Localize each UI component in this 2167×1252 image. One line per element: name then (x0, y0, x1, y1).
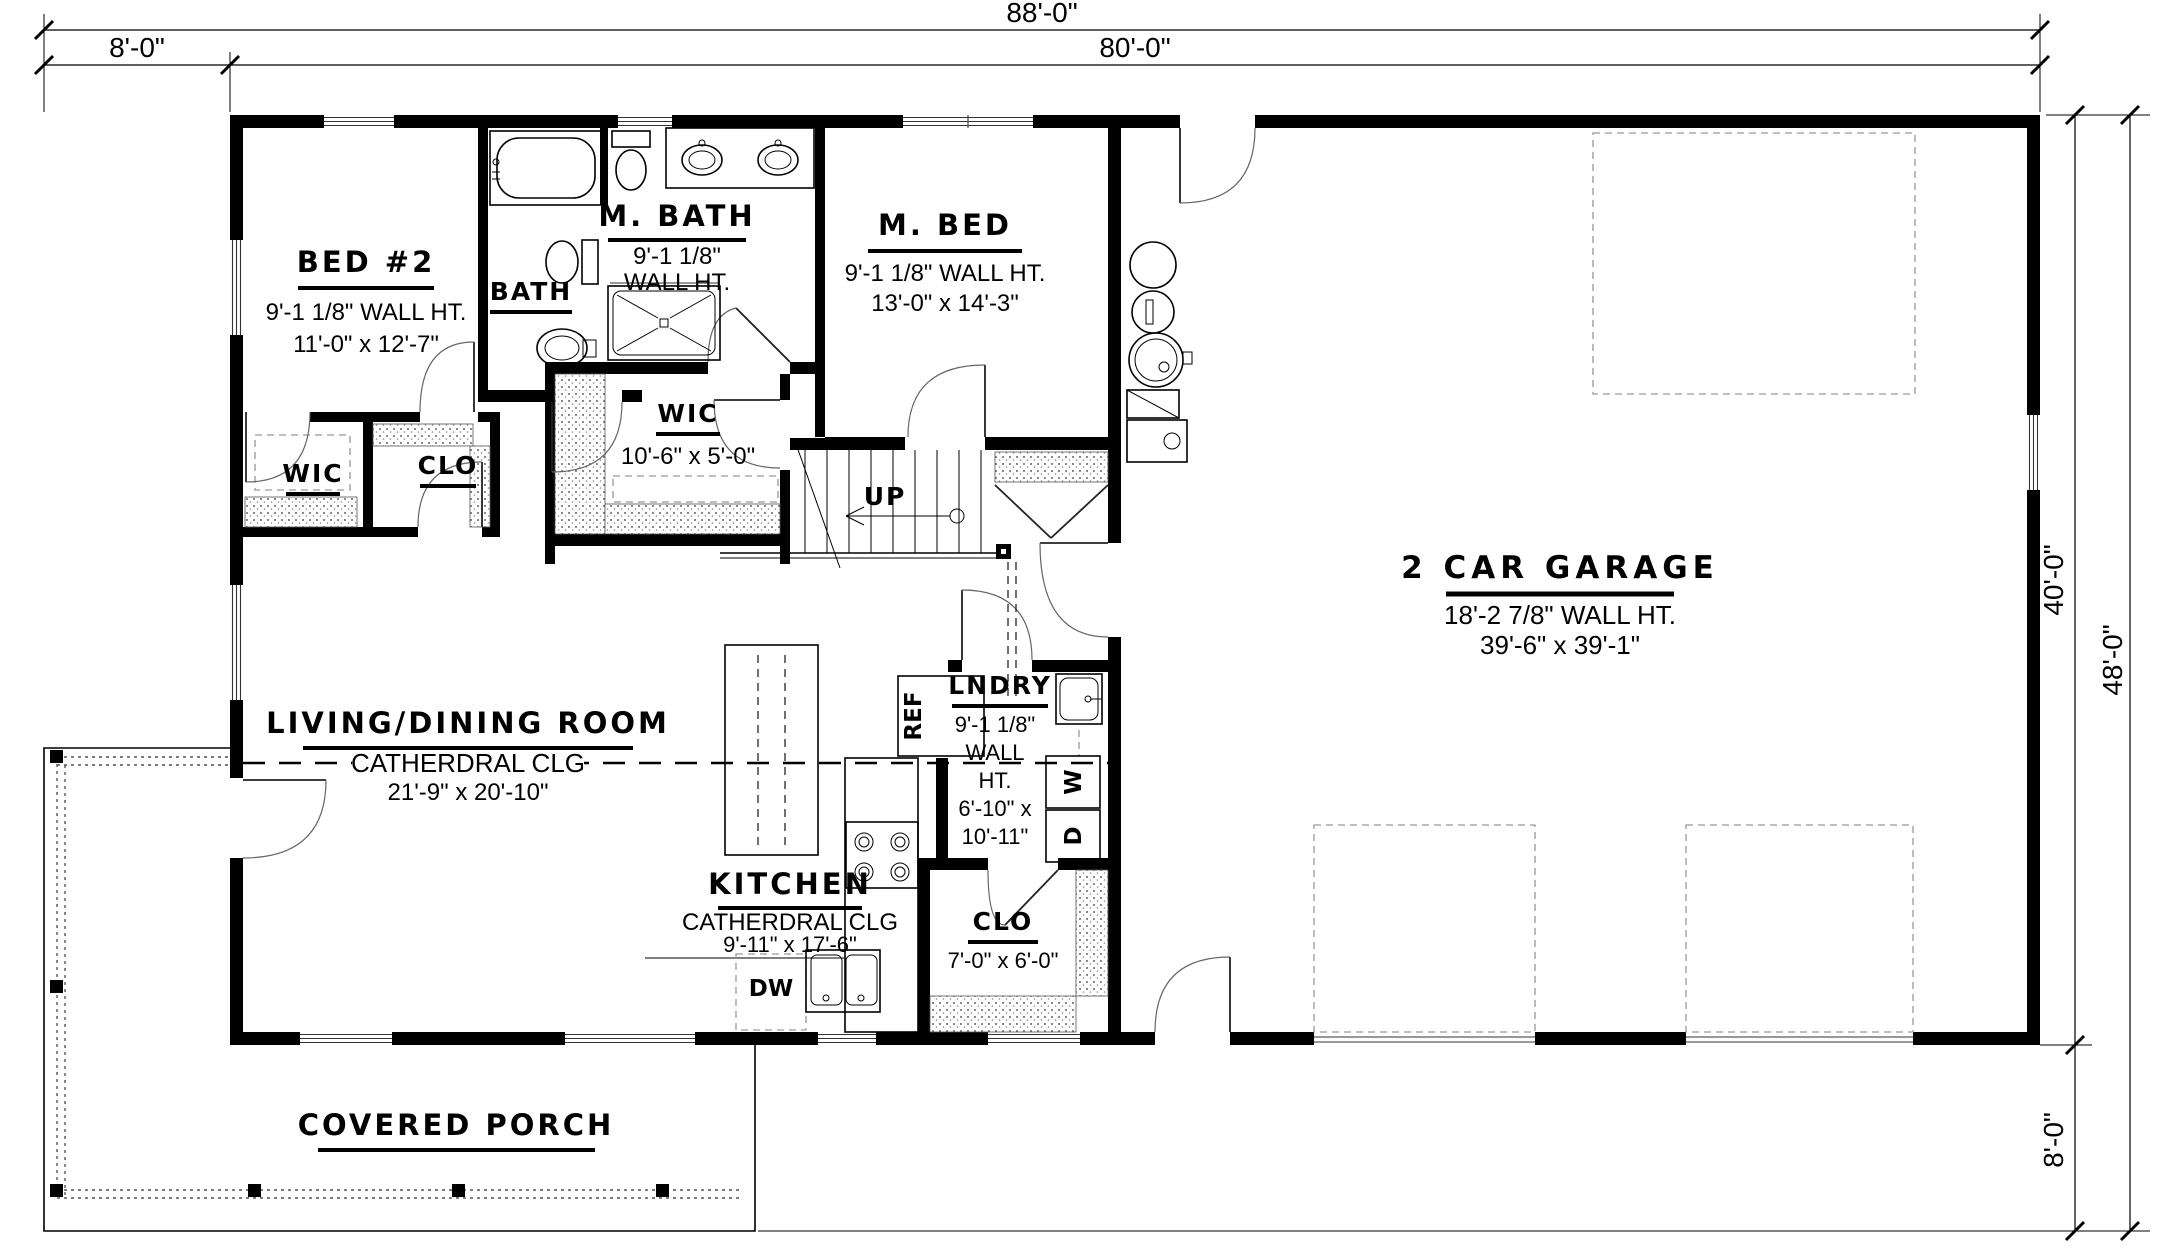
room-label-mbath: M. BATH 9'-1 1/8" WALL HT. (598, 199, 755, 296)
door-garage-exit (1155, 957, 1230, 1032)
window-mbed-north (903, 115, 1033, 128)
room-label-wic: WIC 10'-6" x 5'-0" (621, 399, 755, 470)
svg-text:2 CAR GARAGE: 2 CAR GARAGE (1401, 550, 1719, 586)
svg-text:18'-2 7/8" WALL HT.: 18'-2 7/8" WALL HT. (1444, 600, 1676, 630)
dryer-icon: D (1046, 810, 1100, 862)
dim-porch-offset: 8'-0" (109, 32, 165, 63)
dim-main-depth: 40'-0" (2038, 544, 2069, 615)
door-garage-man (1180, 128, 1255, 203)
windows (233, 115, 2038, 1043)
room-label-kitchen: KITCHEN CATHERDRAL CLG 9'-11" x 17'-6" (682, 867, 898, 957)
dimension-lines: 88'-0" 8'-0" 80'-0" 40'-0" 48'-0" 8'-0" (35, 0, 2150, 1240)
floor-plan-page: 88'-0" 8'-0" 80'-0" 40'-0" 48'-0" 8'-0" … (0, 0, 2167, 1252)
garage-details (1127, 133, 1915, 1042)
washer-label: W (1061, 769, 1087, 794)
room-label-bath: BATH (490, 277, 572, 312)
svg-text:HT.: HT. (979, 768, 1012, 793)
window-kitchen-south (818, 1035, 876, 1043)
svg-text:WIC: WIC (657, 399, 718, 428)
door-porch-entry (243, 780, 326, 858)
svg-text:10'-6" x 5'-0": 10'-6" x 5'-0" (621, 443, 755, 470)
svg-text:7'-0" x 6'-0": 7'-0" x 6'-0" (948, 948, 1059, 973)
dishwasher-icon: DW (736, 954, 806, 1030)
svg-text:21'-9" x 20'-10": 21'-9" x 20'-10" (388, 779, 549, 806)
dw-label: DW (749, 976, 793, 1002)
svg-text:CLO: CLO (973, 907, 1034, 936)
room-label-garage: 2 CAR GARAGE 18'-2 7/8" WALL HT. 39'-6" … (1401, 550, 1719, 660)
dim-overall-width: 88'-0" (1006, 0, 1077, 28)
window-bed2-west (233, 240, 241, 335)
room-label-laundry: LNDRY 9'-1 1/8" WALL HT. 6'-10" x 10'-11… (948, 671, 1052, 849)
kitchen-island (725, 645, 818, 855)
window-mbath-north (618, 118, 672, 126)
door-coat-closet-double (995, 485, 1108, 538)
dryer-label: D (1061, 826, 1087, 845)
svg-text:10'-11": 10'-11" (962, 824, 1029, 849)
window-living-south-1 (300, 1035, 392, 1043)
stairs: UP (720, 444, 1016, 700)
room-label-clo-left: CLO (418, 451, 479, 486)
bathtub-icon (490, 131, 602, 205)
dim-overall-depth: 48'-0" (2097, 624, 2128, 695)
window-garage-east (2030, 415, 2038, 490)
svg-text:BATH: BATH (490, 277, 572, 306)
svg-text:LIVING/DINING ROOM: LIVING/DINING ROOM (266, 706, 670, 740)
svg-text:WIC: WIC (282, 459, 343, 488)
svg-text:13'-0" x 14'-3": 13'-0" x 14'-3" (871, 290, 1019, 317)
garage-door-1 (1314, 825, 1535, 1042)
water-heater-icon (1129, 242, 1192, 387)
garage-door-2 (1686, 825, 1913, 1042)
window-bed2-north (324, 118, 394, 126)
svg-text:LNDRY: LNDRY (948, 671, 1052, 700)
svg-text:9'-1 1/8" WALL HT.: 9'-1 1/8" WALL HT. (266, 299, 467, 326)
room-label-living: LIVING/DINING ROOM CATHERDRAL CLG 21'-9"… (266, 706, 670, 806)
svg-text:KITCHEN: KITCHEN (708, 867, 872, 901)
svg-text:BED #2: BED #2 (297, 245, 436, 279)
window-clo-south (988, 1035, 1080, 1043)
svg-text:9'-11" x 17'-6": 9'-11" x 17'-6" (723, 932, 857, 957)
svg-text:39'-6" x 39'-1": 39'-6" x 39'-1" (1480, 630, 1640, 660)
window-living-west (233, 585, 241, 700)
laundry-sink-icon (1056, 674, 1102, 756)
covered-porch: COVERED PORCH (44, 748, 755, 1231)
door-mbed (908, 365, 985, 437)
dim-porch-depth: 8'-0" (2038, 1112, 2069, 1168)
room-label-clo-kitchen: CLO 7'-0" x 6'-0" (948, 907, 1059, 973)
door-laundry (962, 590, 1032, 660)
svg-text:11'-0" x 12'-7": 11'-0" x 12'-7" (293, 331, 439, 358)
window-living-south-2 (565, 1035, 695, 1043)
ref-label: REF (901, 691, 927, 740)
svg-text:9'-1 1/8" WALL HT.: 9'-1 1/8" WALL HT. (845, 260, 1046, 287)
svg-text:WALL: WALL (965, 740, 1024, 765)
floor-plan-svg: 88'-0" 8'-0" 80'-0" 40'-0" 48'-0" 8'-0" … (0, 0, 2167, 1252)
room-label-wic-left: WIC (282, 459, 343, 494)
mbath-toilet-icon (612, 131, 650, 190)
porch-label: COVERED PORCH (298, 1108, 615, 1142)
svg-text:CATHERDRAL CLG: CATHERDRAL CLG (351, 748, 585, 778)
svg-text:M. BATH: M. BATH (598, 199, 755, 233)
stairs-up-label: UP (864, 482, 907, 511)
room-label-mbed: M. BED 9'-1 1/8" WALL HT. 13'-0" x 14'-3… (845, 208, 1046, 317)
kitchen-sink-icon (806, 950, 880, 1012)
exterior-walls (230, 115, 2040, 1045)
svg-text:6'-10" x: 6'-10" x (958, 796, 1031, 821)
room-label-bed2: BED #2 9'-1 1/8" WALL HT. 11'-0" x 12'-7… (266, 245, 467, 358)
svg-text:9'-1 1/8": 9'-1 1/8" (633, 243, 721, 270)
svg-text:9'-1 1/8": 9'-1 1/8" (955, 712, 1036, 737)
mbath-vanity-icon (666, 128, 814, 188)
furnace-icon (1127, 390, 1187, 462)
door-hall-garage (1040, 543, 1108, 637)
bath-sink-icon (537, 329, 596, 367)
svg-text:WALL HT.: WALL HT. (624, 269, 730, 296)
dim-main-width: 80'-0" (1099, 32, 1170, 63)
svg-text:CLO: CLO (418, 451, 479, 480)
svg-text:M. BED: M. BED (878, 208, 1012, 242)
